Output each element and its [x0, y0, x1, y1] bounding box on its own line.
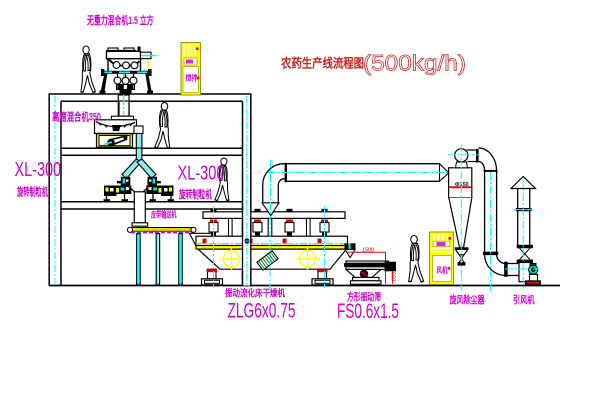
svg-text:搅拌: 搅拌: [186, 73, 198, 83]
svg-text:风机: 风机: [437, 265, 448, 275]
svg-text:引风机: 引风机: [513, 294, 535, 307]
svg-text:高速混合机350: 高速混合机350: [52, 110, 101, 124]
svg-text:旋转制粒机: 旋转制粒机: [178, 187, 212, 201]
svg-text:农药生产线流程图: 农药生产线流程图: [280, 56, 364, 71]
svg-text:XL-300: XL-300: [178, 163, 225, 185]
svg-text:XL-300: XL-300: [15, 159, 62, 181]
svg-text:旋风除尘器: 旋风除尘器: [449, 294, 485, 307]
svg-text:ZLG6x0.75: ZLG6x0.75: [228, 300, 296, 323]
svg-text:振动流化床干燥机: 振动流化床干燥机: [225, 288, 285, 300]
svg-text:1500: 1500: [362, 248, 374, 254]
svg-text:FS0.6x1.5: FS0.6x1.5: [337, 300, 399, 323]
svg-text:皮带输送机: 皮带输送机: [150, 210, 176, 220]
svg-text:(500kg/h): (500kg/h): [363, 51, 466, 76]
svg-text:旋转制粒机: 旋转制粒机: [16, 185, 48, 199]
svg-text:550: 550: [390, 272, 396, 281]
svg-text:无重力混合机1.5 立方: 无重力混合机1.5 立方: [86, 13, 153, 27]
